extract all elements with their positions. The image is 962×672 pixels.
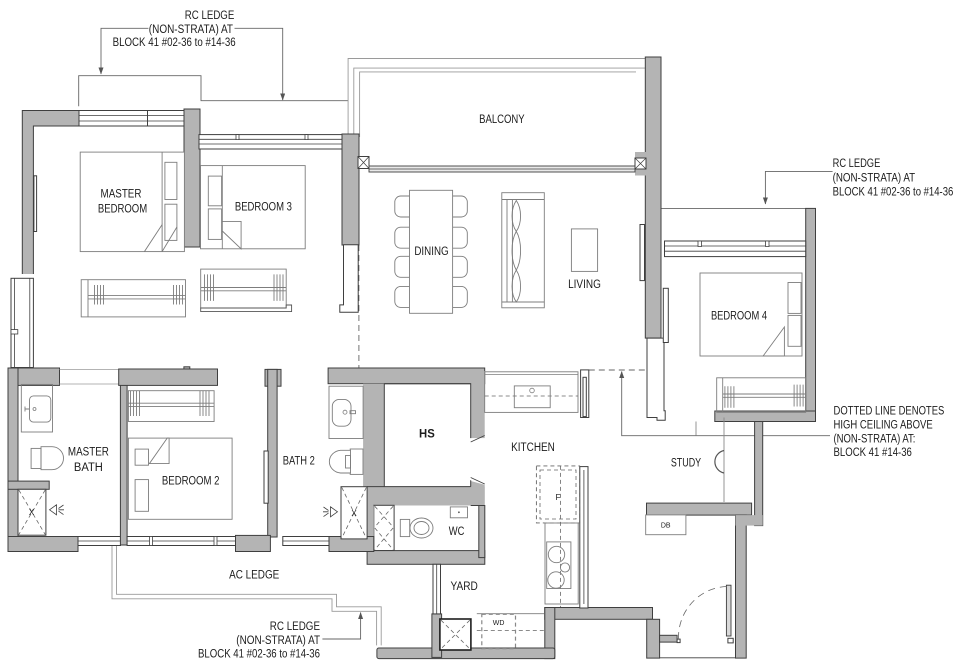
- svg-text:BEDROOM 4: BEDROOM 4: [711, 310, 768, 322]
- svg-text:X: X: [29, 508, 35, 517]
- svg-text:(NON-STRATA) AT: (NON-STRATA) AT: [149, 24, 233, 36]
- svg-text:F: F: [556, 493, 561, 502]
- svg-text:BLOCK 41 #02-36 to #14-36: BLOCK 41 #02-36 to #14-36: [198, 649, 320, 661]
- svg-text:RC LEDGE: RC LEDGE: [185, 10, 235, 22]
- svg-text:STUDY: STUDY: [671, 458, 702, 470]
- svg-text:YARD: YARD: [451, 581, 478, 593]
- svg-text:(NON-STRATA) AT: (NON-STRATA) AT: [236, 635, 320, 647]
- svg-text:BATH: BATH: [74, 462, 103, 474]
- svg-text:DB: DB: [661, 522, 671, 529]
- svg-text:MASTER: MASTER: [68, 447, 109, 459]
- svg-text:BLOCK 41 #02-36 to #14-36: BLOCK 41 #02-36 to #14-36: [833, 186, 954, 198]
- svg-text:RC LEDGE: RC LEDGE: [833, 158, 881, 170]
- svg-text:(NON-STRATA) AT:: (NON-STRATA) AT:: [834, 433, 916, 445]
- svg-text:HS: HS: [419, 429, 435, 441]
- svg-text:LIVING: LIVING: [568, 279, 601, 291]
- svg-text:MASTER: MASTER: [101, 189, 142, 201]
- svg-text:BEDROOM: BEDROOM: [98, 204, 147, 216]
- svg-text:WC: WC: [449, 526, 465, 538]
- svg-text:BALCONY: BALCONY: [479, 114, 525, 126]
- svg-text:KITCHEN: KITCHEN: [511, 442, 555, 454]
- svg-text:HIGH CEILING ABOVE: HIGH CEILING ABOVE: [834, 420, 933, 432]
- svg-text:(NON-STRATA) AT: (NON-STRATA) AT: [833, 173, 916, 185]
- svg-text:WD: WD: [493, 620, 505, 627]
- svg-text:BATH 2: BATH 2: [283, 456, 315, 468]
- svg-text:BLOCK 41 #14-36: BLOCK 41 #14-36: [834, 447, 912, 459]
- svg-text:X: X: [351, 509, 357, 518]
- svg-text:BEDROOM 3: BEDROOM 3: [235, 202, 292, 214]
- svg-text:AC LEDGE: AC LEDGE: [229, 569, 279, 581]
- svg-text:DINING: DINING: [414, 246, 448, 258]
- svg-text:RC LEDGE: RC LEDGE: [270, 621, 320, 633]
- svg-text:BEDROOM 2: BEDROOM 2: [162, 476, 220, 488]
- svg-text:BLOCK 41 #02-36 to #14-36: BLOCK 41 #02-36 to #14-36: [113, 37, 236, 49]
- svg-text:DOTTED LINE DENOTES: DOTTED LINE DENOTES: [834, 406, 945, 418]
